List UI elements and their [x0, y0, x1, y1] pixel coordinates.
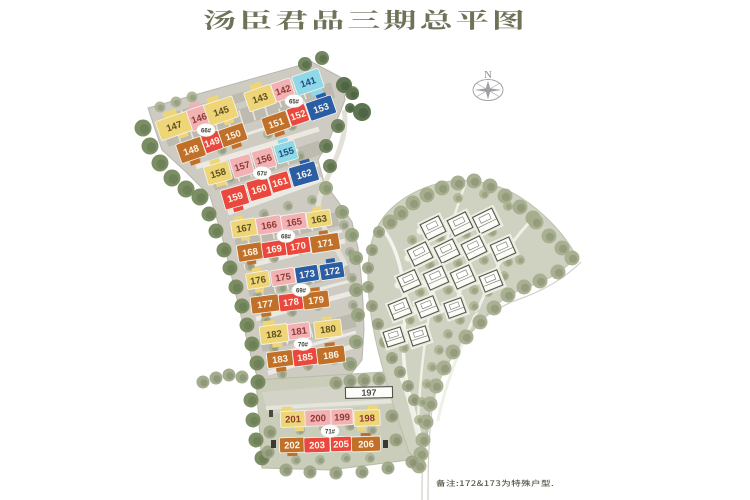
svg-text:181: 181	[291, 325, 309, 338]
svg-text:186: 186	[323, 349, 340, 362]
svg-text:185: 185	[297, 351, 315, 364]
svg-text:68#: 68#	[281, 234, 292, 240]
svg-text:177: 177	[257, 298, 274, 311]
svg-text:179: 179	[308, 294, 325, 307]
svg-text:198: 198	[359, 413, 375, 425]
svg-text:203: 203	[309, 440, 325, 452]
svg-text:205: 205	[333, 439, 350, 451]
svg-text:200: 200	[310, 413, 326, 425]
svg-text:183: 183	[272, 353, 289, 366]
svg-text:197: 197	[361, 388, 376, 398]
svg-text:70#: 70#	[298, 342, 309, 348]
svg-text:69#: 69#	[296, 288, 307, 294]
svg-text:178: 178	[283, 296, 300, 309]
svg-text:65#: 65#	[289, 99, 300, 105]
svg-text:199: 199	[334, 412, 350, 424]
svg-text:67#: 67#	[257, 171, 268, 177]
svg-text:182: 182	[266, 328, 283, 341]
svg-text:180: 180	[320, 323, 337, 336]
svg-text:71#: 71#	[325, 429, 336, 435]
svg-text:202: 202	[284, 440, 300, 452]
svg-text:206: 206	[358, 439, 374, 451]
svg-text:201: 201	[285, 414, 302, 426]
svg-text:66#: 66#	[201, 128, 212, 134]
